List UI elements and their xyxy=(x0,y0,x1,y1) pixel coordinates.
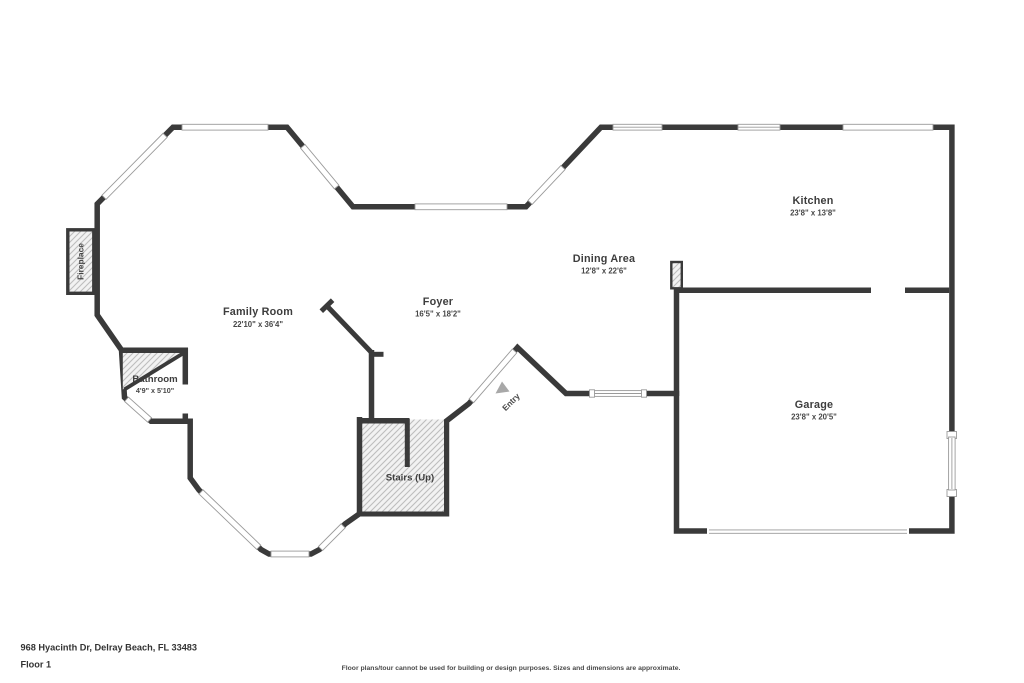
stairs xyxy=(357,417,444,515)
window-bathroom-diag xyxy=(125,397,152,422)
room-label-bathroom: Bathroom xyxy=(132,374,177,385)
room-label-kitchen: Kitchen xyxy=(793,195,834,207)
window-kitchen-2 xyxy=(738,124,780,130)
entry-door-opening xyxy=(469,349,517,403)
windows xyxy=(102,124,957,557)
room-labels: Family Room 22'10" x 36'4" Foyer 16'5" x… xyxy=(132,195,837,484)
divider-stub xyxy=(671,262,682,288)
window-familyroom-top xyxy=(182,124,268,130)
window-dining-diag xyxy=(528,166,565,205)
window-familyroom-right-diag xyxy=(301,144,339,188)
entry-marker: Entry xyxy=(496,382,523,413)
room-dims-foyer: 16'5" x 18'2" xyxy=(415,310,461,319)
room-label-garage: Garage xyxy=(795,399,833,411)
window-garage-right xyxy=(947,432,957,497)
fireplace-label: Fireplace xyxy=(76,243,86,280)
window-dining-bottom xyxy=(590,390,647,397)
stairs-hatch xyxy=(362,420,444,512)
footer-address: 968 Hyacinth Dr, Delray Beach, FL 33483 xyxy=(21,643,198,653)
room-label-dining: Dining Area xyxy=(573,253,636,265)
window-familyroom-left-diag xyxy=(102,133,167,199)
room-dims-kitchen: 23'8" x 13'8" xyxy=(790,209,836,218)
window-bay-left-diag xyxy=(199,490,261,550)
room-label-foyer: Foyer xyxy=(423,296,454,308)
window-bay-right-diag xyxy=(318,524,345,551)
kitchen-garage-door-gap xyxy=(871,287,905,294)
room-label-family-room: Family Room xyxy=(223,306,293,318)
room-dims-family-room: 22'10" x 36'4" xyxy=(233,320,283,329)
house-outline xyxy=(97,127,952,554)
window-kitchen-3 xyxy=(843,124,933,130)
window-kitchen-1 xyxy=(613,124,662,130)
footer-disclaimer: Floor plans/tour cannot be used for buil… xyxy=(342,665,681,672)
window-foyer-top xyxy=(415,204,507,210)
garage-door xyxy=(707,527,909,534)
entry-label: Entry xyxy=(501,391,522,412)
footer-floor: Floor 1 xyxy=(21,660,52,670)
fireplace: Fireplace xyxy=(68,230,94,293)
room-dims-dining: 12'8" x 22'6" xyxy=(581,267,627,276)
footer: 968 Hyacinth Dr, Delray Beach, FL 33483 … xyxy=(21,643,681,673)
entry-arrow-icon xyxy=(496,382,510,394)
window-bay-bottom xyxy=(271,551,309,557)
floorplan-page: Fireplace xyxy=(0,0,1024,683)
floorplan-svg: Fireplace xyxy=(0,0,1024,683)
room-dims-bathroom: 4'9" x 5'10" xyxy=(136,386,174,395)
stairs-label: Stairs (Up) xyxy=(386,473,435,484)
room-dims-garage: 23'8" x 20'5" xyxy=(791,413,837,422)
